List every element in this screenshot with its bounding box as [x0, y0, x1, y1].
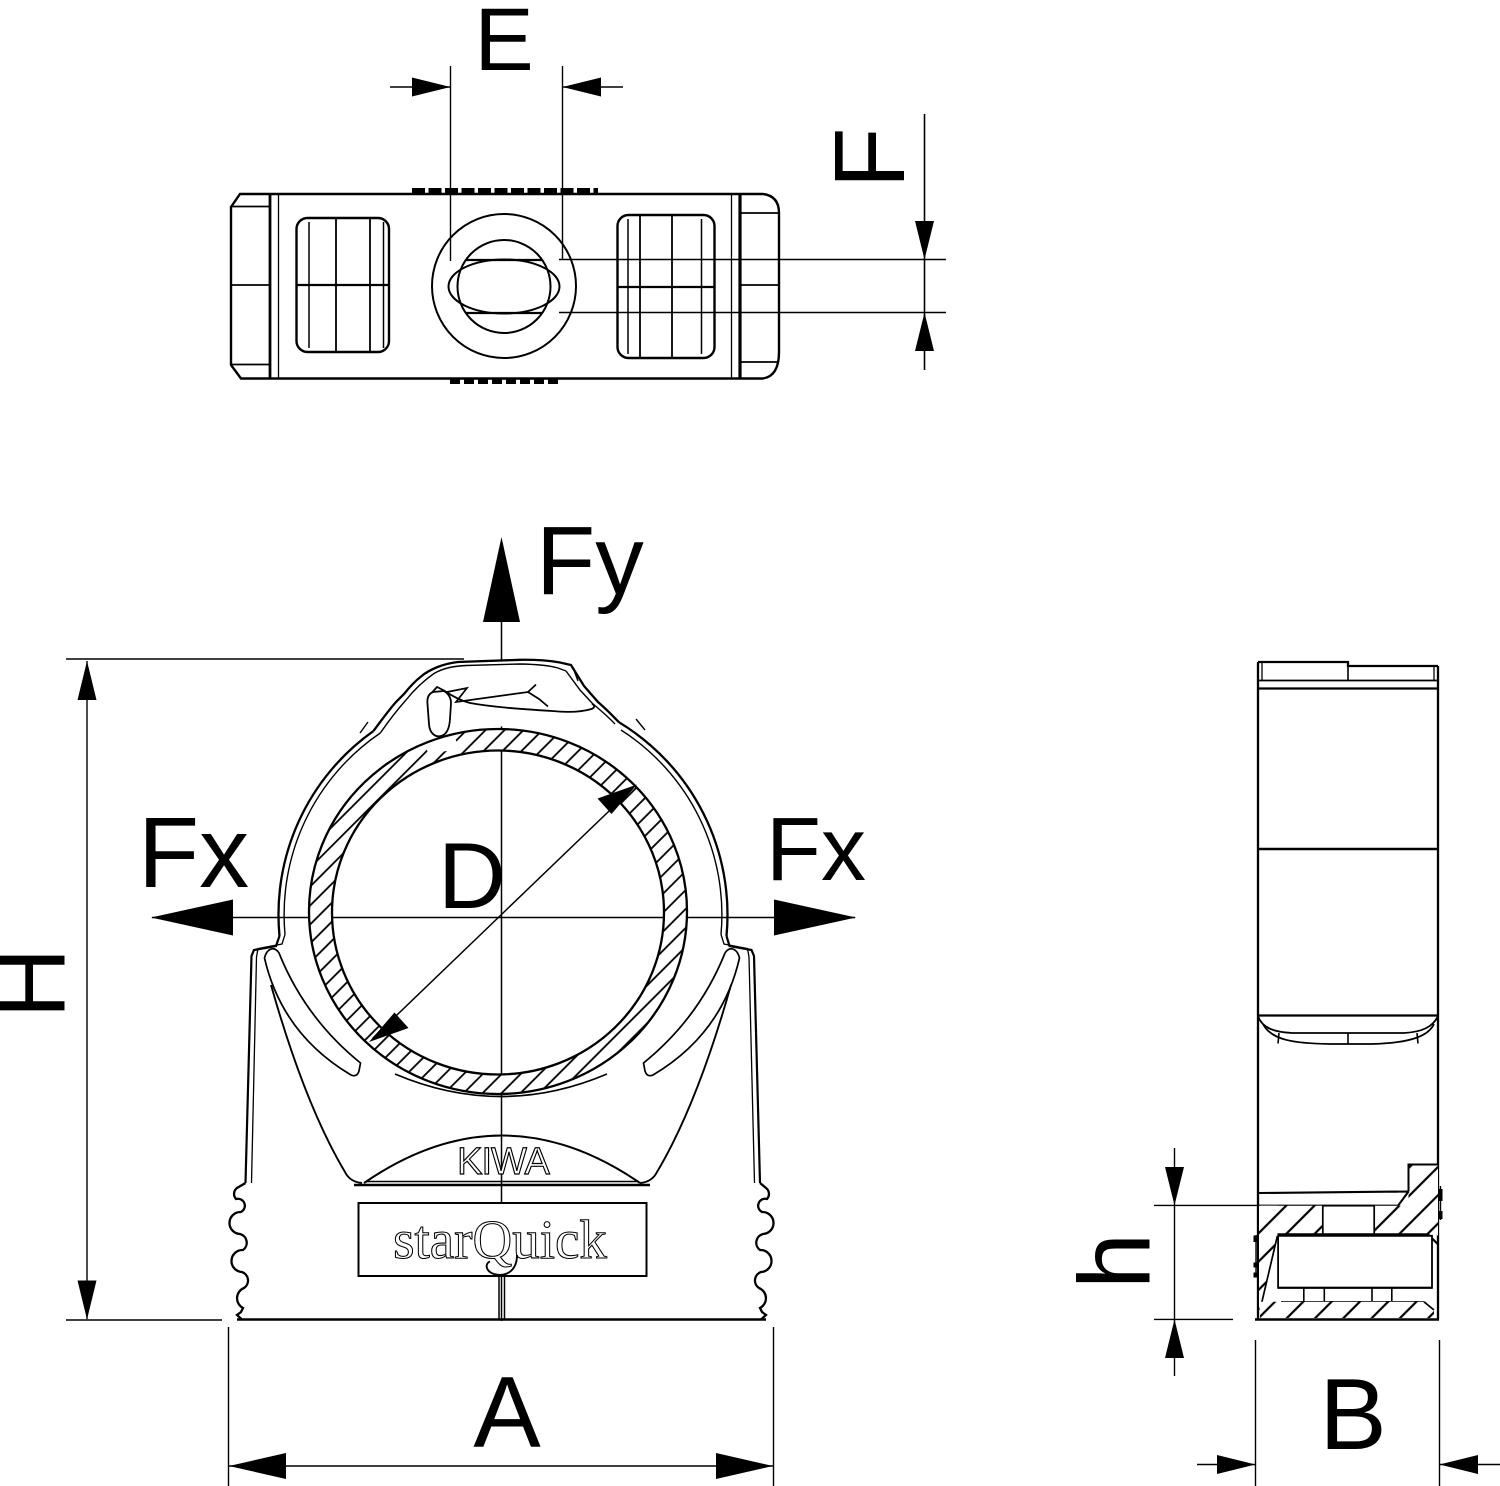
- svg-text:KIWA: KIWA: [457, 1141, 550, 1183]
- svg-text:H: H: [0, 948, 85, 1019]
- svg-text:F: F: [814, 127, 926, 188]
- svg-text:h: h: [1059, 1233, 1171, 1289]
- svg-text:Fy: Fy: [536, 506, 644, 615]
- svg-text:E: E: [474, 0, 533, 89]
- svg-text:Fx: Fx: [766, 800, 866, 900]
- svg-text:D: D: [438, 823, 506, 928]
- svg-text:starQuick: starQuick: [393, 1209, 607, 1270]
- svg-text:B: B: [1319, 1359, 1386, 1471]
- svg-text:A: A: [473, 1357, 541, 1469]
- svg-text:Fx: Fx: [138, 797, 249, 909]
